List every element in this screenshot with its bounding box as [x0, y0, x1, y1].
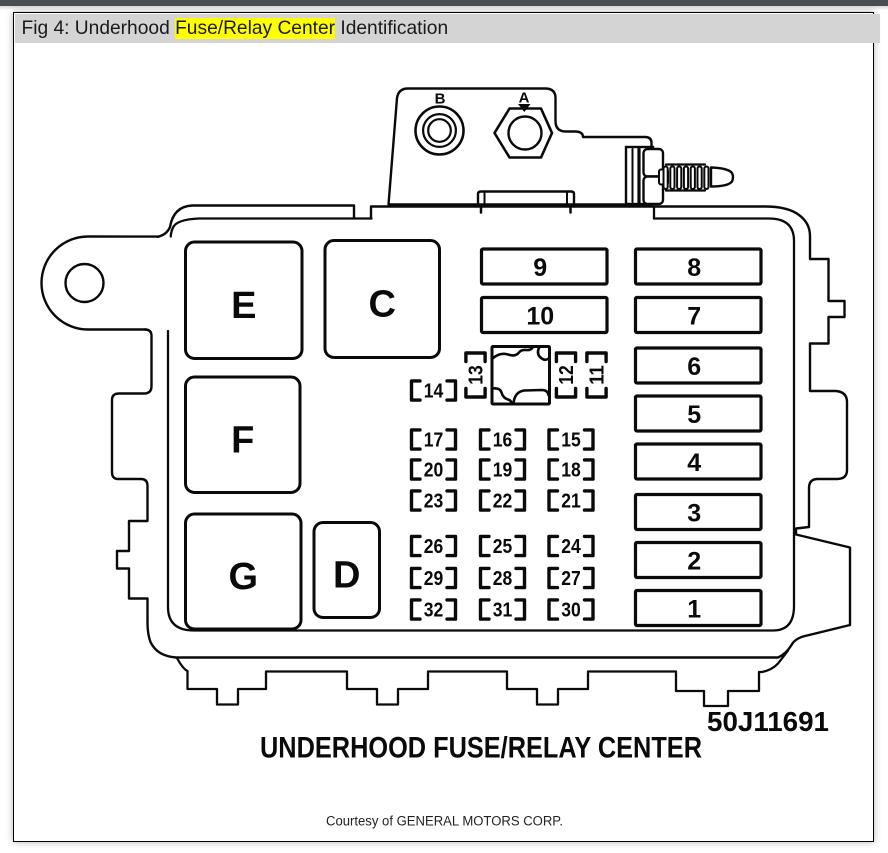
svg-text:11: 11: [587, 365, 609, 385]
svg-text:19: 19: [493, 460, 513, 482]
svg-text:18: 18: [561, 460, 581, 482]
svg-text:32: 32: [424, 600, 444, 622]
svg-text:17: 17: [424, 430, 444, 452]
svg-text:26: 26: [424, 536, 444, 558]
svg-text:25: 25: [493, 536, 513, 558]
svg-text:50J11691: 50J11691: [707, 706, 829, 737]
svg-text:24: 24: [561, 536, 581, 558]
svg-text:G: G: [228, 556, 258, 598]
svg-text:4: 4: [687, 449, 701, 477]
svg-text:8: 8: [687, 254, 701, 282]
svg-text:22: 22: [493, 491, 513, 513]
svg-text:C: C: [369, 284, 396, 326]
svg-text:F: F: [231, 419, 254, 461]
svg-text:5: 5: [687, 401, 701, 429]
svg-text:1: 1: [687, 596, 701, 624]
svg-text:23: 23: [424, 491, 444, 513]
svg-text:A: A: [519, 90, 530, 107]
svg-text:3: 3: [687, 500, 701, 528]
svg-text:29: 29: [424, 568, 444, 590]
svg-text:14: 14: [424, 381, 444, 403]
svg-text:15: 15: [561, 430, 581, 452]
svg-text:10: 10: [526, 303, 554, 331]
svg-text:28: 28: [493, 568, 513, 590]
svg-text:21: 21: [561, 491, 581, 513]
svg-text:20: 20: [424, 460, 444, 482]
svg-text:6: 6: [687, 353, 701, 381]
svg-text:12: 12: [556, 365, 578, 385]
svg-text:30: 30: [561, 600, 581, 622]
svg-text:27: 27: [561, 568, 581, 590]
svg-text:E: E: [231, 285, 256, 327]
svg-text:UNDERHOOD FUSE/RELAY CENTER: UNDERHOOD FUSE/RELAY CENTER: [260, 732, 702, 765]
svg-text:16: 16: [493, 430, 513, 452]
svg-text:2: 2: [687, 548, 701, 576]
svg-text:D: D: [333, 555, 360, 597]
svg-text:13: 13: [466, 365, 488, 385]
svg-text:9: 9: [533, 254, 547, 282]
svg-text:B: B: [435, 91, 446, 108]
svg-text:Courtesy of GENERAL MOTORS COR: Courtesy of GENERAL MOTORS CORP.: [326, 814, 563, 830]
svg-text:31: 31: [493, 600, 513, 622]
svg-text:7: 7: [687, 303, 701, 331]
